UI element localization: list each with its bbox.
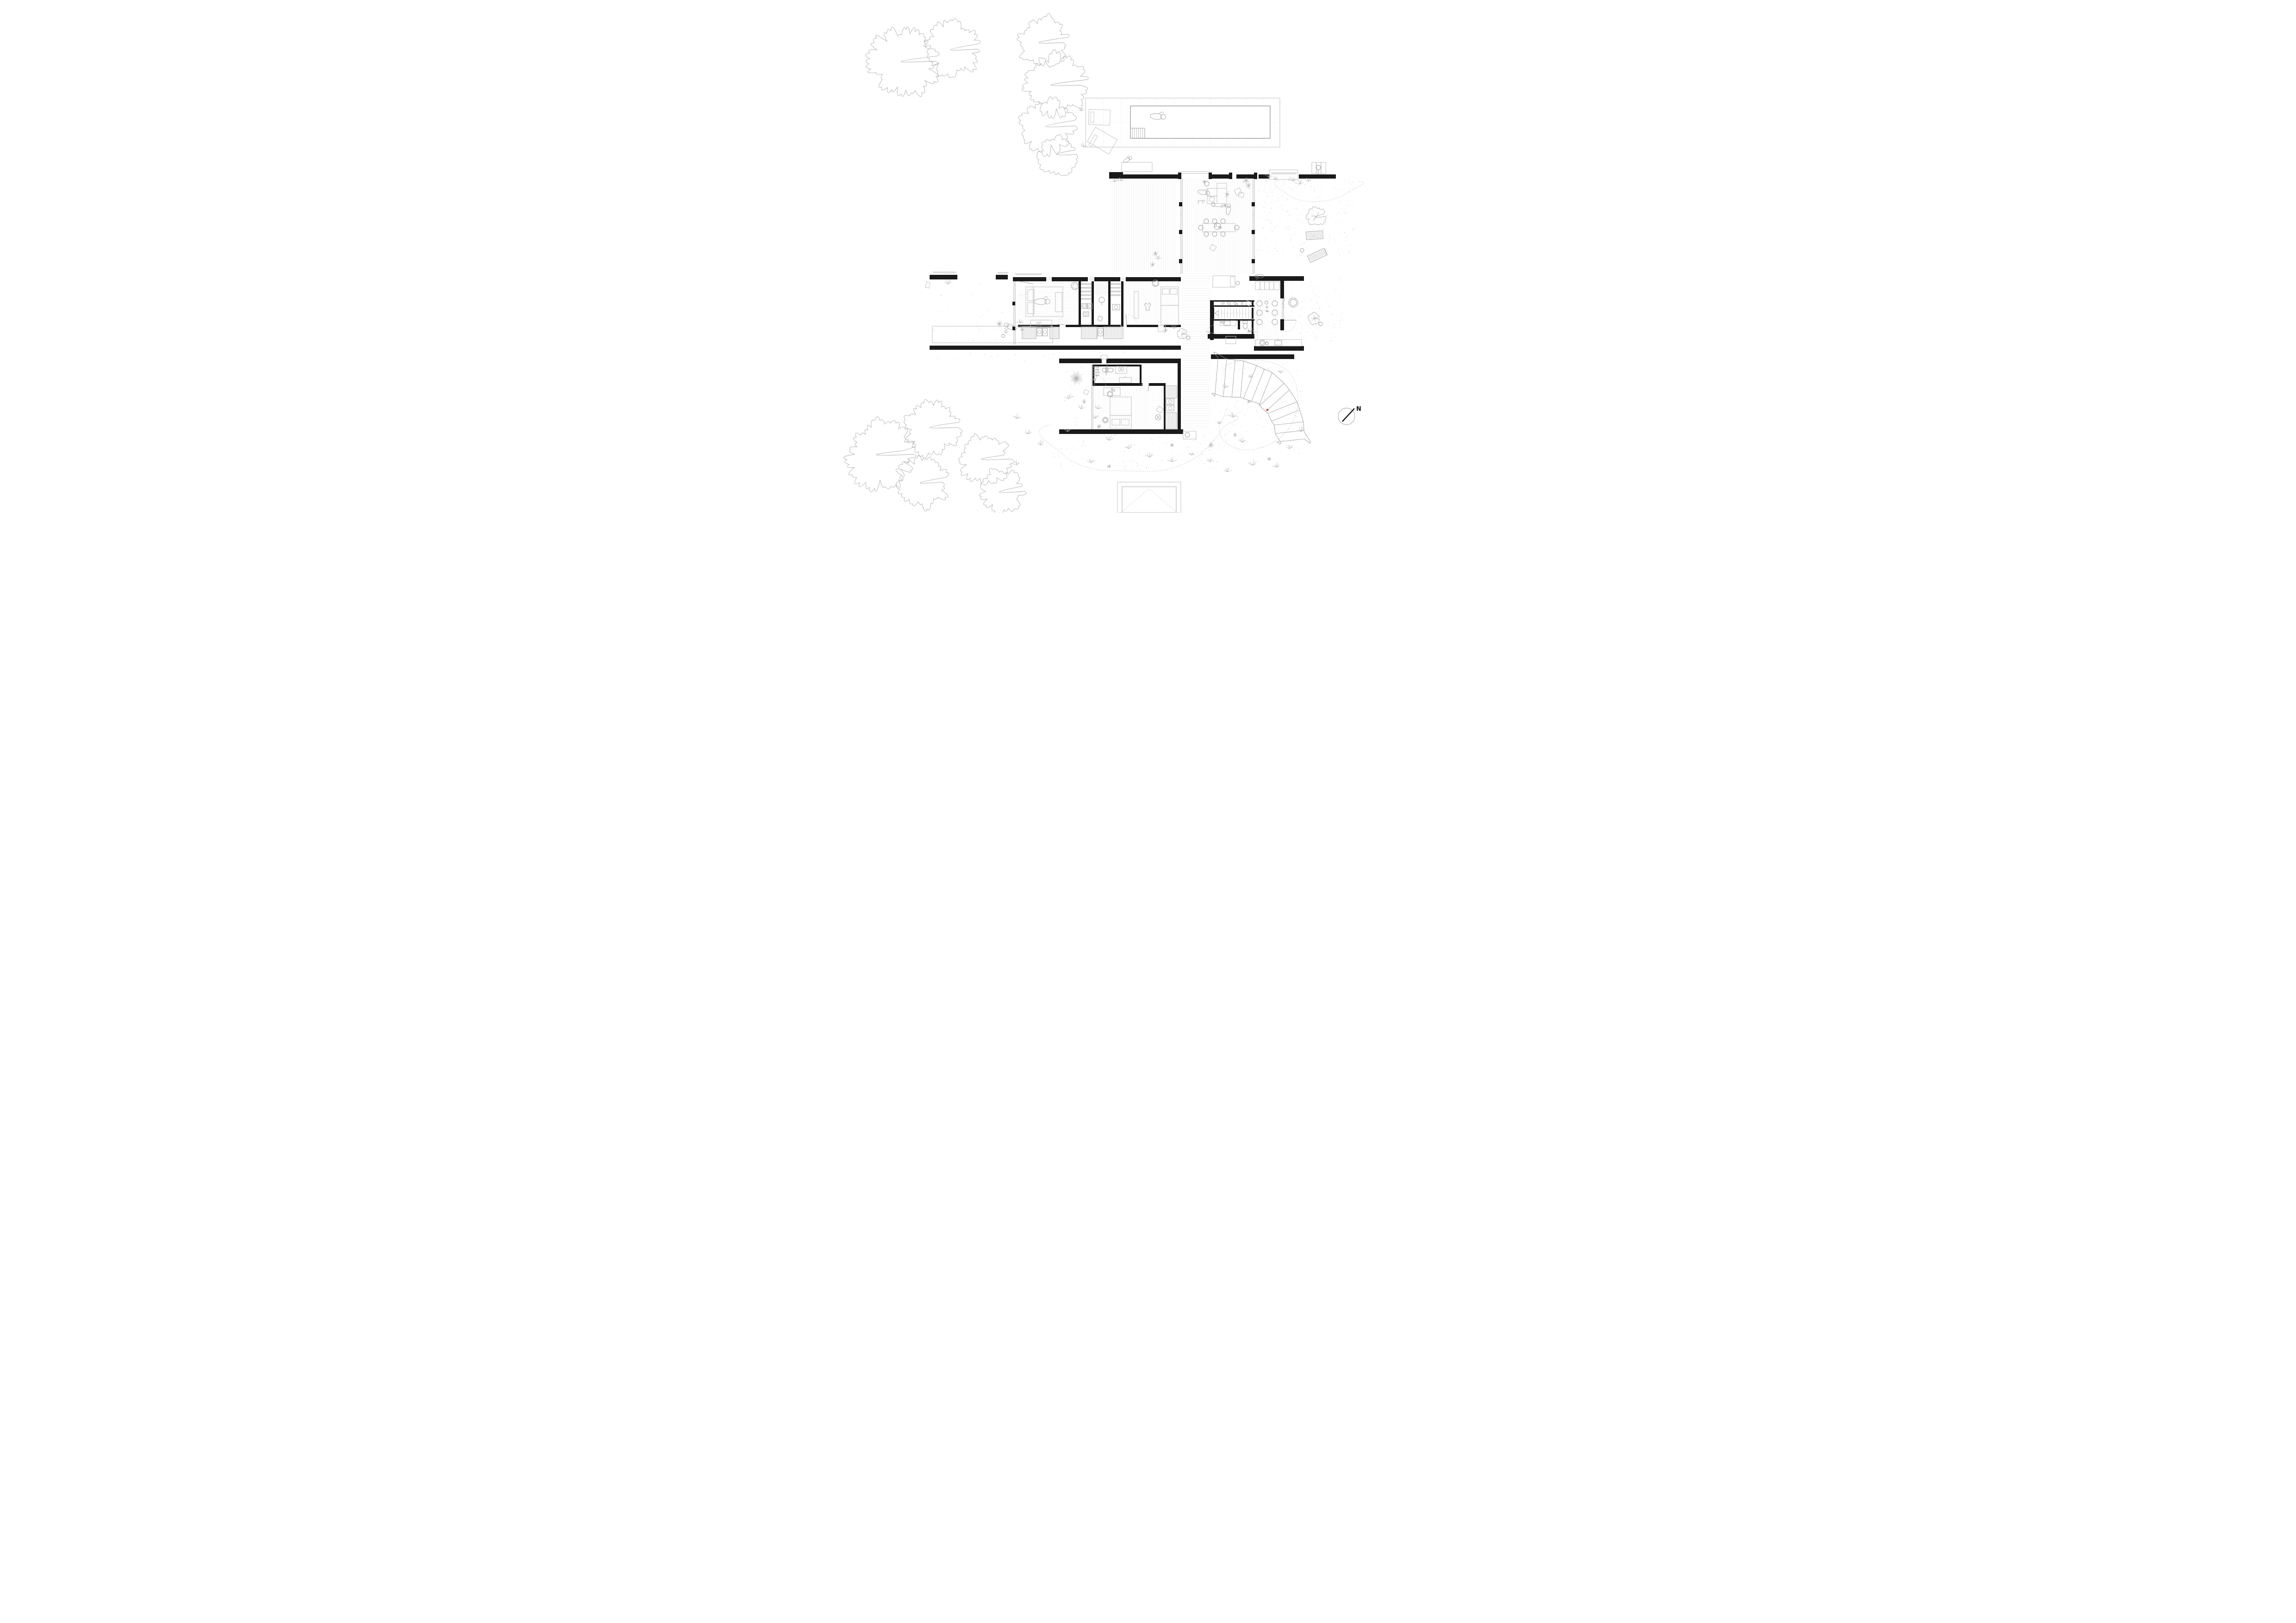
stipple-dot (1300, 391, 1301, 392)
furniture-outline (1312, 162, 1326, 173)
wall-segment (1211, 174, 1231, 179)
stipple-dot (1149, 350, 1149, 350)
plant-starburst (1170, 443, 1174, 447)
stipple-dot (1340, 280, 1342, 281)
hedge-row (998, 273, 1007, 274)
stipple-dot (1303, 215, 1303, 215)
stipple-dot (1299, 220, 1300, 221)
stipple-dot (1275, 238, 1275, 238)
stipple-dot (1293, 328, 1294, 329)
cabinet-hatch-line (1314, 254, 1316, 259)
cabinet-hatch-line (1313, 232, 1314, 239)
sprig-stem (1189, 452, 1191, 455)
stipple-dot (1222, 391, 1222, 392)
stipple-dot (1233, 419, 1233, 420)
stipple-dot (1258, 368, 1259, 369)
stipple-dot (1314, 287, 1315, 288)
stipple-dot (950, 316, 951, 317)
stipple-dot (1291, 228, 1292, 229)
sprig-stem (1253, 459, 1253, 465)
stipple-dot (1173, 452, 1173, 453)
stipple-dot (1275, 242, 1276, 243)
toilet-bowl (1108, 368, 1113, 372)
stipple-dot (1297, 390, 1297, 390)
stipple-dot (1344, 320, 1345, 321)
stipple-dot (1084, 374, 1085, 375)
stipple-dot (1222, 364, 1222, 365)
tree-inner-branch (1314, 217, 1316, 221)
fixture-outline (1224, 321, 1230, 325)
stipple-dot (1301, 400, 1302, 401)
stipple-dot (1062, 439, 1062, 440)
stipple-dot (1242, 437, 1243, 438)
stipple-dot (1307, 332, 1308, 333)
stipple-dot (971, 296, 972, 297)
stipple-dot (1116, 439, 1117, 440)
wall-segment (1094, 277, 1120, 281)
stipple-dot (1067, 397, 1067, 397)
stipple-dot (1002, 294, 1003, 295)
stipple-dot (1291, 414, 1291, 415)
furniture-outline (1209, 197, 1215, 203)
stipple-dot (1238, 434, 1239, 434)
stipple-dot (1060, 463, 1061, 464)
stipple-dot (1226, 440, 1227, 440)
stipple-dot (1078, 450, 1079, 450)
stipple-dot (1296, 199, 1296, 200)
furniture-circle (1319, 322, 1322, 326)
sprig-stem (1242, 440, 1245, 442)
stipple-dot (1330, 217, 1331, 217)
stipple-dot (1266, 216, 1267, 217)
stipple-dot (1063, 416, 1064, 417)
stipple-dot (1296, 404, 1297, 405)
stipple-dot (1259, 363, 1260, 364)
wall-segment (1236, 174, 1254, 179)
stipple-dot (1285, 224, 1286, 225)
stipple-dot (1322, 226, 1322, 227)
cabinet-hatch-line (1316, 253, 1319, 258)
stipple-dot (1283, 380, 1284, 381)
stipple-dot (1229, 367, 1231, 368)
stipple-dot (1297, 443, 1297, 443)
plant-sprig (1012, 460, 1020, 465)
stipple-dot (1274, 227, 1275, 228)
stipple-dot (1310, 281, 1311, 282)
stipple-dot (1316, 244, 1317, 245)
furniture-line (1215, 311, 1218, 313)
stipple-dot (1305, 338, 1306, 339)
stipple-dot (1115, 353, 1115, 353)
stipple-dot (1219, 443, 1220, 444)
stipple-dot (1259, 242, 1260, 242)
wall-segment (1106, 359, 1181, 363)
stipple-dot (1290, 235, 1291, 236)
stipple-dot (1098, 435, 1099, 435)
stipple-dot (1328, 300, 1328, 301)
furniture-line (1222, 303, 1225, 305)
stipple-dot (1324, 183, 1324, 183)
stipple-dot (1231, 398, 1232, 399)
wall-segment (1121, 281, 1123, 327)
stipple-dot (1277, 363, 1278, 364)
stipple-dot (1297, 257, 1298, 258)
stipple-dot (1300, 403, 1301, 404)
stipple-dot (1289, 379, 1290, 380)
stipple-dot (1204, 463, 1205, 464)
stipple-dot (1265, 181, 1266, 182)
stipple-dot (1267, 367, 1268, 368)
appliance-box (1112, 304, 1120, 310)
stipple-dot (1053, 353, 1054, 354)
stipple-dot (1230, 384, 1231, 385)
stipple-dot (1261, 217, 1262, 218)
sprig-stem (1247, 462, 1253, 465)
stipple-dot (1302, 286, 1302, 286)
garden-boundary-dotted (1275, 180, 1363, 202)
stipple-dot (1313, 212, 1313, 212)
wall-segment (1178, 359, 1181, 431)
garden-boundary-dotted (1219, 360, 1298, 450)
wall-segment (1252, 308, 1253, 319)
stipple-dot (1339, 320, 1340, 321)
stipple-dot (1197, 452, 1198, 453)
stipple-dot (1096, 440, 1096, 440)
stipple-dot (1071, 385, 1072, 386)
stipple-dot (1163, 350, 1164, 351)
stipple-dot (1143, 449, 1144, 449)
stipple-dot (1126, 460, 1126, 460)
sprig-stem (1017, 463, 1019, 465)
stipple-dot (1080, 355, 1080, 356)
stipple-dot (1300, 316, 1300, 316)
hatched-cabinet (1022, 327, 1036, 339)
stipple-dot (1072, 371, 1073, 372)
stipple-dot (1140, 469, 1141, 470)
stipple-dot (1261, 193, 1262, 193)
stipple-dot (1341, 248, 1342, 249)
stipple-dot (1104, 451, 1104, 451)
stipple-dot (1280, 399, 1281, 400)
stipple-dot (1302, 244, 1303, 245)
furniture-circle (1005, 331, 1007, 333)
cooktop-inner (1260, 341, 1264, 344)
stipple-dot (1124, 465, 1125, 466)
furniture-circle (1272, 319, 1278, 325)
fixture-outline (1081, 298, 1092, 299)
stipple-dot (1339, 255, 1340, 256)
stipple-dot (1338, 249, 1339, 250)
stipple-dot (1270, 192, 1271, 192)
stipple-dot (1297, 205, 1298, 205)
stipple-dot (1154, 451, 1154, 452)
fixture-outline (1098, 316, 1103, 321)
stipple-dot (1285, 427, 1286, 428)
sun-lounger (1087, 127, 1117, 154)
stipple-dot (1250, 430, 1251, 431)
stipple-dot (1258, 191, 1259, 191)
stipple-dot (1178, 454, 1179, 455)
stipple-dot (1265, 380, 1265, 380)
cooktop (1260, 340, 1265, 346)
stipple-dot (1224, 435, 1225, 436)
stipple-dot (1132, 465, 1133, 466)
stair-tread (1215, 358, 1218, 396)
stipple-dot (1260, 424, 1260, 424)
furniture-circle (1211, 203, 1215, 206)
stipple-dot (1334, 238, 1334, 239)
stipple-dot (1122, 461, 1123, 462)
stipple-dot (1291, 239, 1292, 240)
stipple-dot (1249, 411, 1250, 412)
stipple-dot (1242, 423, 1243, 424)
stipple-dot (1068, 462, 1069, 462)
cabinet-hatch-line (1318, 232, 1319, 238)
stipple-dot (1329, 237, 1330, 238)
stipple-dot (1237, 372, 1238, 372)
tree-canopy (896, 455, 949, 511)
stipple-dot (1210, 433, 1210, 434)
structural-column (1179, 259, 1182, 263)
pool-terrace (1086, 98, 1280, 154)
stipple-dot (1312, 325, 1313, 326)
stipple-dot (1272, 250, 1272, 250)
stipple-dot (1288, 438, 1289, 439)
stipple-dot (1072, 447, 1072, 447)
stipple-dot (1272, 239, 1272, 240)
stair-tread (1277, 439, 1304, 442)
stipple-dot (1194, 440, 1195, 441)
plan-layers (844, 13, 1364, 513)
stipple-dot (1241, 434, 1241, 435)
stipple-dot (1259, 256, 1260, 257)
stipple-dot (1312, 235, 1313, 236)
stipple-dot (971, 294, 972, 295)
stipple-dot (1319, 306, 1320, 307)
sprig-stem (1277, 465, 1280, 467)
stipple-dot (1286, 227, 1287, 228)
stipple-dot (1112, 352, 1113, 353)
furniture-line (1221, 302, 1224, 304)
furniture-line (1213, 206, 1221, 207)
stipple-dot (1330, 186, 1330, 186)
stipple-dot (1274, 235, 1274, 235)
stipple-dot (1336, 253, 1337, 254)
stipple-dot (1307, 248, 1307, 248)
stipple-dot (1347, 182, 1347, 183)
stipple-dot (1313, 333, 1314, 334)
stipple-dot (1259, 447, 1260, 448)
stipple-dot (1303, 205, 1304, 206)
curved-stair (1212, 352, 1310, 444)
stipple-dot (1310, 222, 1310, 222)
cabinet-hatch-line (1313, 254, 1315, 260)
stipple-dot (956, 328, 956, 328)
stipple-dot (968, 340, 969, 341)
stipple-dot (1166, 434, 1167, 436)
stipple-dot (1292, 429, 1293, 430)
stair-tread (1274, 422, 1303, 425)
stipple-dot (1225, 468, 1226, 468)
stipple-dot (1283, 248, 1283, 248)
stipple-dot (1240, 445, 1241, 446)
stipple-dot (1155, 355, 1156, 356)
stipple-dot (1292, 293, 1293, 294)
plant-sprig (1095, 405, 1102, 409)
stipple-dot (1061, 357, 1062, 358)
stipple-dot (1294, 183, 1295, 184)
stipple-dot (1334, 337, 1334, 338)
stipple-dot (1346, 248, 1347, 248)
stipple-dot (1218, 450, 1219, 451)
stipple-dot (1219, 437, 1220, 438)
wall-segment (1013, 277, 1046, 281)
stipple-dot (1291, 198, 1291, 198)
sprig-stem (1280, 371, 1284, 373)
hatched-cabinet (1166, 413, 1177, 428)
stipple-dot (1182, 468, 1183, 469)
stipple-dot (1289, 188, 1290, 189)
furniture-circle (1212, 232, 1217, 236)
stipple-dot (1241, 387, 1242, 387)
lounger-pillow (1091, 112, 1094, 123)
stipple-dot (1210, 468, 1210, 469)
stipple-dot (1300, 449, 1300, 450)
wall-segment (1079, 281, 1081, 327)
stipple-dot (1240, 412, 1241, 413)
stipple-dot (1161, 450, 1162, 451)
stipple-dot (1321, 198, 1322, 198)
stipple-dot (1320, 200, 1321, 201)
stipple-dot (1103, 359, 1104, 360)
stipple-dot (1342, 318, 1343, 319)
plant-sprig (1189, 452, 1195, 455)
appliance-dial (1114, 305, 1118, 309)
plant-sprig (1239, 438, 1246, 442)
furniture-circle (1204, 232, 1209, 236)
furniture-circle (1265, 301, 1268, 304)
stipple-dot (1241, 426, 1241, 426)
sprig-stem (1290, 446, 1293, 449)
stipple-dot (1074, 354, 1074, 354)
stipple-dot (1250, 392, 1251, 393)
stipple-dot (1124, 451, 1125, 452)
stipple-dot (1326, 235, 1327, 236)
stipple-dot (1257, 373, 1258, 374)
stipple-dot (1081, 458, 1081, 459)
sprig-stem (1013, 416, 1017, 419)
stipple-dot (1264, 387, 1265, 388)
plant-sprig (1081, 142, 1088, 147)
stipple-dot (1333, 256, 1334, 257)
stipple-dot (1282, 209, 1282, 210)
hedge-row (933, 273, 956, 274)
plant-starburst (1247, 400, 1252, 403)
structural-column (1252, 259, 1255, 263)
stipple-dot (1294, 424, 1295, 425)
stipple-dot (1290, 180, 1290, 181)
stipple-dot (1080, 446, 1081, 447)
stipple-dot (1322, 181, 1322, 181)
stipple-dot (1352, 205, 1353, 206)
stipple-dot (1297, 231, 1298, 232)
stipple-dot (1171, 465, 1172, 465)
stipple-dot (1333, 280, 1334, 281)
stipple-dot (1278, 198, 1279, 199)
stipple-dot (1164, 443, 1165, 444)
stipple-dot (1201, 444, 1202, 445)
appliance-box (1037, 328, 1042, 336)
stipple-dot (994, 329, 995, 330)
sprig-stem (1250, 462, 1253, 465)
stipple-dot (1270, 228, 1271, 229)
compass-needle (1342, 409, 1354, 421)
cabinet-hatch-line (1322, 250, 1324, 256)
stipple-dot (1332, 334, 1333, 335)
stipple-dot (1229, 411, 1230, 412)
stipple-dot (1282, 186, 1283, 187)
stipple-dot (1330, 340, 1332, 341)
stipple-dot (1113, 459, 1114, 460)
stipple-dot (1253, 418, 1253, 419)
stipple-dot (1351, 245, 1352, 246)
stipple-dot (991, 350, 992, 351)
stipple-dot (1257, 250, 1258, 251)
stipple-dot (1340, 201, 1341, 202)
cabinet-hatch-line (1316, 232, 1316, 238)
stipple-dot (1283, 252, 1284, 253)
stipple-dot (1300, 310, 1301, 311)
stipple-dot (1075, 424, 1076, 425)
stipple-dot (1254, 409, 1254, 410)
stipple-dot (1341, 318, 1342, 319)
stipple-dot (977, 306, 978, 307)
plant-sprig (1229, 412, 1237, 417)
wall-segment (1140, 365, 1142, 385)
stipple-dot (1290, 215, 1291, 216)
stipple-dot (1352, 229, 1353, 229)
stipple-dot (1228, 364, 1229, 365)
stipple-dot (1338, 213, 1339, 214)
stipple-dot (1270, 258, 1271, 259)
fixture-outline (1111, 287, 1120, 288)
stipple-dot (1086, 398, 1087, 399)
stipple-dot (1025, 356, 1025, 356)
stipple-dot (1337, 190, 1338, 191)
wall-segment (930, 275, 957, 279)
stipple-dot (1317, 339, 1318, 340)
stipple-dot (1265, 211, 1266, 212)
stipple-dot (1301, 255, 1302, 256)
fixture-outline (1081, 284, 1092, 285)
stipple-dot (1250, 371, 1251, 372)
furniture-outline (1161, 287, 1179, 325)
stipple-dot (1279, 419, 1280, 420)
stipple-dot (1322, 339, 1322, 339)
stipple-dot (1236, 449, 1237, 450)
stipple-dot (1054, 456, 1055, 457)
appliance-dial (1088, 304, 1092, 308)
stipple-dot (1263, 192, 1264, 192)
stipple-dot (1246, 431, 1247, 432)
plant-sprig (1025, 430, 1032, 434)
stipple-dot (1244, 445, 1244, 445)
stipple-dot (1334, 187, 1334, 188)
stipple-dot (1292, 380, 1293, 381)
stipple-dot (1235, 364, 1236, 365)
plant-starburst (1266, 457, 1272, 461)
person-body (1035, 299, 1046, 305)
